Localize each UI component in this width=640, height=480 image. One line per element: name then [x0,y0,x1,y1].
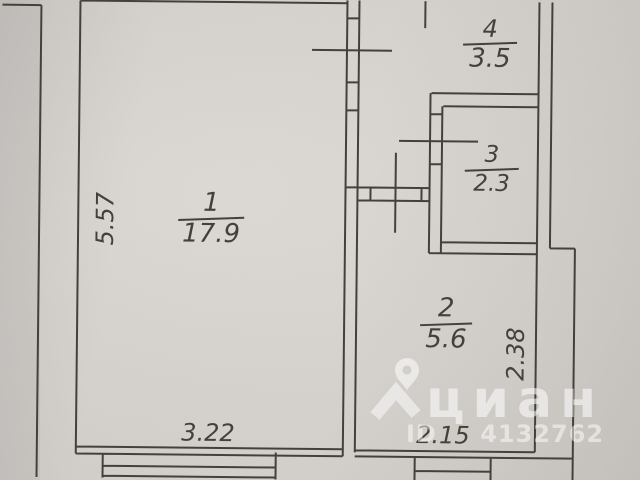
floorplan-photo: 1 17.9 2 5.6 3 2.3 4 3.5 5.57 3.22 2.15 … [0,0,640,480]
watermark-listing-id: ID 4132762 [406,420,604,448]
room-number: 2 [438,295,455,321]
room-area: 17.9 [182,221,240,249]
room-area: 5.6 [425,326,467,353]
room-2-label: 2 5.6 [420,295,473,354]
map-pin-icon [366,354,426,424]
door-opening-lines [310,50,479,234]
dimension-room1-width: 3.22 [181,419,235,448]
room-1-label: 1 17.9 [178,190,245,249]
room-number: 3 [484,144,499,167]
room-area: 2.3 [473,172,510,196]
room-area: 3.5 [469,46,511,73]
dimension-room1-height: 5.57 [91,192,120,246]
watermark-brand: циан [426,374,604,426]
room-4-label: 4 3.5 [463,16,518,73]
room-3-label: 3 2.3 [464,144,519,197]
room-number: 4 [482,17,498,41]
room-number: 1 [203,190,220,216]
